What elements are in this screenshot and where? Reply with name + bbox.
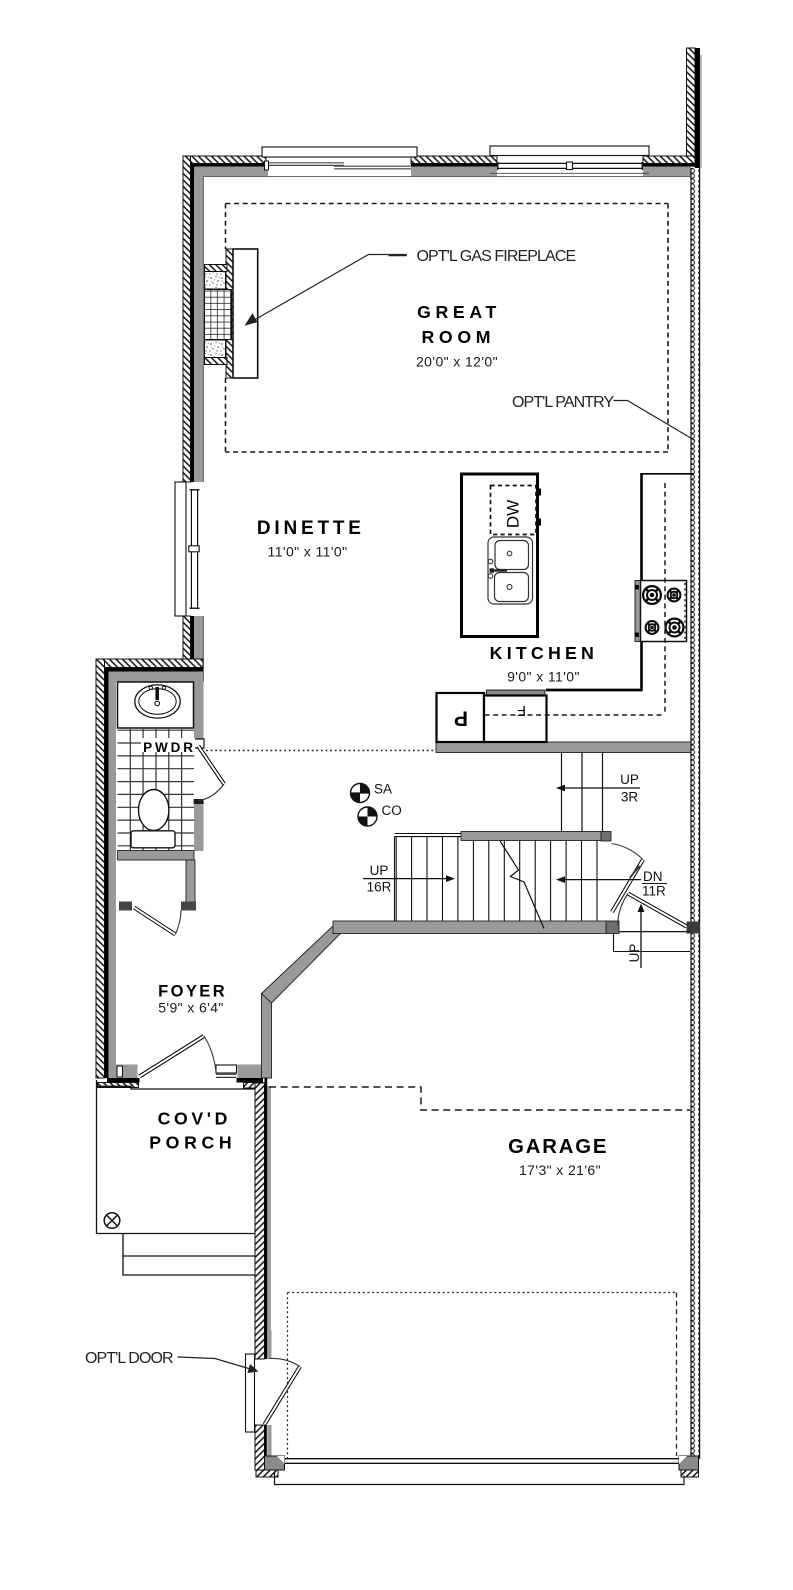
svg-text:GREAT: GREAT — [417, 302, 501, 322]
svg-text:DN: DN — [643, 869, 663, 884]
svg-text:PORCH: PORCH — [149, 1133, 236, 1153]
svg-text:3R: 3R — [621, 790, 639, 805]
svg-text:GARAGE: GARAGE — [508, 1136, 608, 1158]
svg-text:KITCHEN: KITCHEN — [490, 643, 598, 663]
svg-text:DW: DW — [504, 500, 523, 528]
svg-text:UP: UP — [370, 863, 389, 878]
svg-text:CO: CO — [382, 803, 402, 818]
svg-text:FOYER: FOYER — [158, 983, 227, 1001]
svg-text:9'0" x 11'0": 9'0" x 11'0" — [507, 669, 580, 685]
svg-text:16R: 16R — [367, 880, 392, 895]
svg-text:P: P — [454, 707, 468, 730]
svg-text:OPT'L DOOR: OPT'L DOOR — [85, 1350, 173, 1367]
svg-text:5'9" x 6'4": 5'9" x 6'4" — [158, 1000, 224, 1016]
svg-text:17'3" x 21'6": 17'3" x 21'6" — [519, 1162, 601, 1178]
svg-text:DINETTE: DINETTE — [257, 518, 365, 539]
svg-text:OPT'L GAS FIREPLACE: OPT'L GAS FIREPLACE — [417, 248, 576, 265]
svg-text:PWDR: PWDR — [143, 740, 196, 755]
svg-text:ROOM: ROOM — [421, 327, 495, 347]
svg-text:UP: UP — [620, 772, 639, 787]
svg-text:11R: 11R — [642, 884, 666, 899]
svg-text:UP: UP — [627, 944, 642, 963]
svg-text:SA: SA — [374, 782, 392, 797]
svg-text:COV'D: COV'D — [158, 1109, 231, 1129]
svg-text:11'0" x 11'0": 11'0" x 11'0" — [268, 544, 348, 560]
svg-text:20'0" x 12'0": 20'0" x 12'0" — [416, 354, 498, 370]
svg-text:OPT'L PANTRY: OPT'L PANTRY — [512, 394, 615, 411]
